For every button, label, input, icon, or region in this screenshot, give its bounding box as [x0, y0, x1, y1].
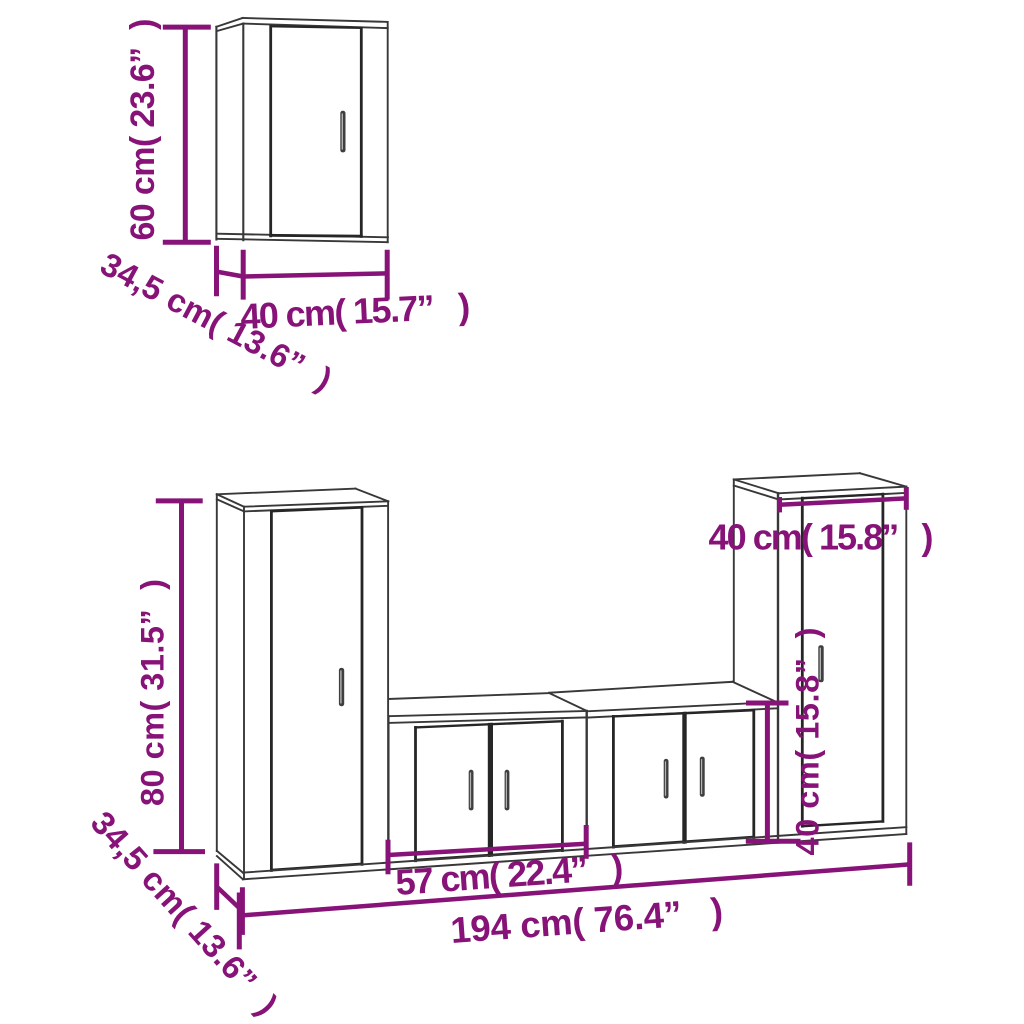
svg-text:80 cm( 31.5” ): 80 cm( 31.5” ) — [135, 579, 171, 806]
svg-text:60 cm( 23.6” ): 60 cm( 23.6” ) — [124, 19, 162, 241]
svg-text:40 cm( 15.8” ): 40 cm( 15.8” ) — [709, 517, 934, 558]
svg-text:40 cm( 15.8” ): 40 cm( 15.8” ) — [790, 628, 826, 856]
